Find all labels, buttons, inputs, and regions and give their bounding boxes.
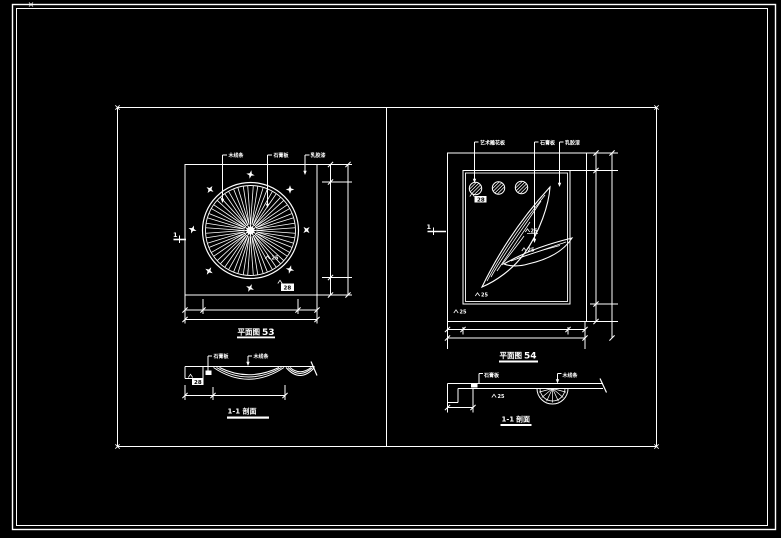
callout-label: 乳胶漆	[311, 152, 326, 159]
drawing-geometry	[266, 204, 269, 208]
drawing-title: 平面图	[500, 351, 523, 360]
drawing-geometry	[471, 384, 478, 388]
detail-note: 25	[531, 229, 538, 235]
drawing-geometry	[303, 227, 309, 233]
drawing-number: 54	[524, 352, 537, 362]
drawing-geometry	[205, 267, 212, 274]
corner-tag: 28	[194, 380, 202, 386]
drawing-geometry	[525, 229, 529, 232]
section-title: 1-1	[228, 408, 241, 416]
left-section-drawing: 石膏板 木线条 28 1-1 剖面	[194, 353, 269, 416]
drawing-geometry	[207, 186, 214, 193]
drawing-geometry	[533, 239, 536, 243]
drawing-geometry	[454, 310, 458, 313]
drawing-geometry	[470, 193, 474, 196]
cad-canvas: 木线条 石膏板 乳胶漆 1 25 28 平面图 53 石膏板 木线条 28 1-…	[0, 0, 781, 538]
drawing-geometry	[208, 218, 245, 229]
drawing-geometry	[474, 187, 481, 194]
drawing-geometry	[303, 171, 306, 175]
drawing-geometry	[278, 280, 282, 283]
drawing-geometry	[497, 222, 530, 271]
drawing-geometry	[246, 170, 254, 178]
drawing-geometry	[238, 188, 249, 225]
section-title-suffix: 剖面	[243, 407, 257, 416]
drawing-geometry	[520, 186, 527, 193]
drawing-geometry	[600, 379, 607, 393]
callout-label: 石膏板	[273, 152, 290, 159]
callout-label: 石膏板	[483, 372, 500, 379]
drawing-geometry	[252, 236, 263, 273]
callout-label: 艺术雕花板	[480, 140, 506, 147]
corner-tag: 28	[477, 197, 485, 203]
drawing-geometry	[256, 218, 293, 229]
section-cut-marker: 1	[427, 223, 432, 231]
section-title: 1-1	[502, 416, 515, 424]
callout-label: 石膏板	[213, 353, 230, 360]
drawing-geometry	[243, 223, 257, 237]
drawing-geometry	[517, 246, 560, 259]
detail-note: 25	[272, 256, 279, 262]
drawing-geometry	[188, 374, 192, 377]
drawing-geometry	[492, 394, 496, 397]
section-cut-marker: 1	[173, 231, 178, 239]
callout-label: 木线条	[253, 353, 269, 360]
drawing-geometry	[256, 232, 293, 243]
drawing-geometry	[206, 371, 212, 376]
drawing-geometry	[556, 379, 559, 383]
drawing-geometry	[252, 188, 263, 225]
drawing-geometry	[13, 3, 776, 530]
drawing-geometry	[448, 153, 587, 322]
drawing-geometry	[208, 232, 245, 243]
drawing-geometry	[286, 265, 294, 273]
drawing-geometry	[475, 293, 479, 296]
drawing-geometry	[522, 248, 526, 251]
drawing-geometry	[547, 389, 553, 402]
drawing-geometry	[217, 368, 282, 378]
drawing-geometry	[553, 389, 559, 402]
drawing-geometry	[246, 362, 249, 366]
drawing-title: 平面图	[238, 328, 261, 337]
section-title-suffix: 剖面	[516, 415, 530, 424]
cad-viewport: 木线条 石膏板 乳胶漆 1 25 28 平面图 53 石膏板 木线条 28 1-…	[0, 0, 781, 538]
drawing-number: 53	[262, 328, 275, 338]
detail-note: 25	[460, 310, 467, 316]
drawing-geometry	[227, 417, 269, 419]
drawing-geometry	[558, 183, 561, 187]
callout-label: 木线条	[562, 372, 578, 379]
corner-tag: 28	[284, 286, 292, 292]
drawing-geometry	[13, 5, 776, 530]
drawing-geometry	[189, 226, 197, 234]
callout-label: 石膏板	[539, 140, 556, 147]
drawing-geometry	[286, 185, 295, 194]
callout-label: 木线条	[228, 152, 244, 159]
detail-note: 25	[498, 394, 505, 400]
drawing-geometry	[497, 187, 504, 194]
right-section-drawing: 石膏板 木线条 25 1-1 剖面	[483, 372, 578, 424]
callout-label: 乳胶漆	[565, 140, 580, 147]
detail-note: 25	[481, 293, 488, 299]
detail-note: 25	[528, 248, 535, 254]
drawing-geometry	[501, 424, 532, 426]
drawing-geometry	[238, 236, 249, 273]
drawing-geometry	[246, 284, 254, 292]
